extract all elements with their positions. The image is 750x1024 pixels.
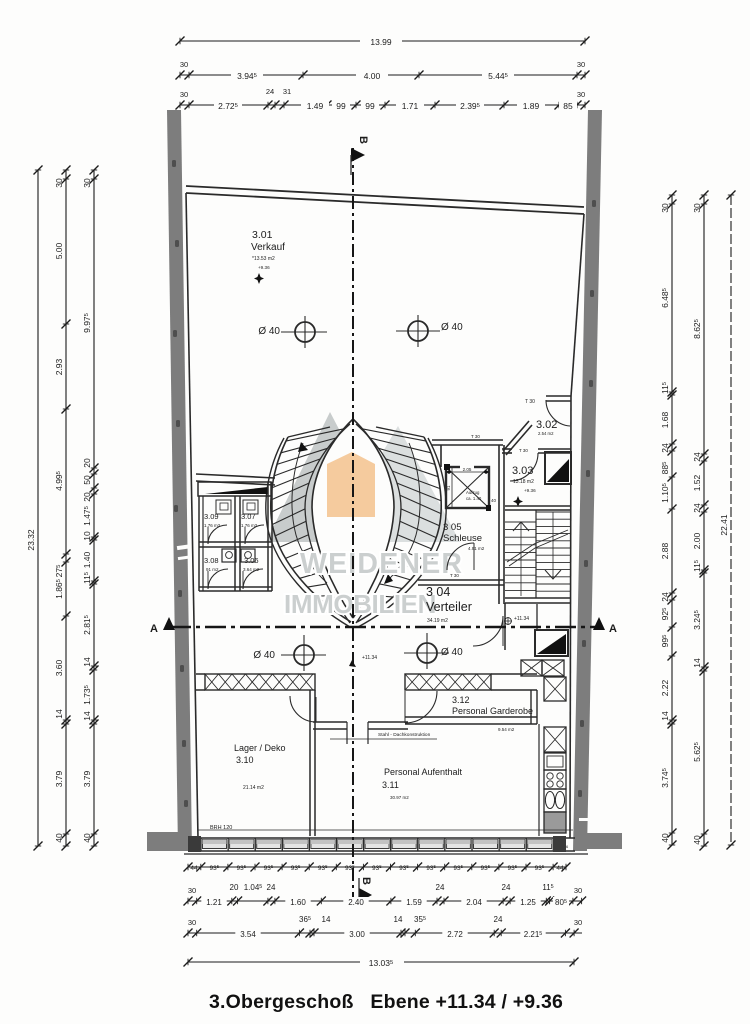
svg-text:1.49: 1.49 <box>307 101 324 111</box>
svg-text:24: 24 <box>436 883 445 892</box>
svg-text:2.05: 2.05 <box>463 467 472 472</box>
svg-text:20: 20 <box>82 492 92 502</box>
svg-text:Ø 40: Ø 40 <box>441 647 463 658</box>
svg-text:ca. 1.40: ca. 1.40 <box>466 496 482 501</box>
svg-text:+11.34: +11.34 <box>362 655 377 661</box>
svg-text:85: 85 <box>563 101 573 111</box>
svg-text:3.54: 3.54 <box>240 930 256 939</box>
svg-text:Personal Aufenthalt: Personal Aufenthalt <box>384 767 463 777</box>
svg-text:14: 14 <box>54 709 64 719</box>
svg-text:Schleuse: Schleuse <box>443 533 482 544</box>
svg-text:3.12: 3.12 <box>452 695 470 705</box>
svg-text:23.32: 23.32 <box>26 529 36 551</box>
svg-text:T 30: T 30 <box>519 448 528 453</box>
svg-text:1.59: 1.59 <box>406 898 422 907</box>
svg-text:3 05: 3 05 <box>443 522 462 533</box>
svg-text:1.60: 1.60 <box>290 898 306 907</box>
svg-text:1.25: 1.25 <box>520 898 536 907</box>
svg-text:9.54 m2: 9.54 m2 <box>498 727 515 732</box>
svg-text:+9.36: +9.36 <box>258 265 270 270</box>
svg-text:T 30: T 30 <box>450 573 459 578</box>
svg-text:2.93: 2.93 <box>54 358 64 375</box>
svg-text:*13.53 m2: *13.53 m2 <box>252 256 275 262</box>
svg-text:30.97 m2: 30.97 m2 <box>390 795 409 800</box>
svg-text:44: 44 <box>190 865 198 872</box>
svg-text:1.71: 1.71 <box>402 101 419 111</box>
svg-text:30: 30 <box>180 60 188 69</box>
svg-text:13.18 m2: 13.18 m2 <box>513 479 534 485</box>
svg-text:14: 14 <box>322 915 331 924</box>
svg-text:3.02: 3.02 <box>536 419 557 431</box>
svg-text:Lager / Deko: Lager / Deko <box>234 743 286 753</box>
svg-text:WEIDENER: WEIDENER <box>300 548 463 580</box>
svg-text:50: 50 <box>82 475 92 485</box>
svg-text:4.00: 4.00 <box>364 71 381 81</box>
svg-text:3.79: 3.79 <box>54 770 64 787</box>
svg-text:3.03: 3.03 <box>512 465 533 477</box>
svg-text:14: 14 <box>394 915 403 924</box>
svg-text:10: 10 <box>82 531 92 541</box>
svg-text:Ø 40: Ø 40 <box>253 650 275 661</box>
svg-text:A: A <box>150 623 158 635</box>
svg-text:Verteiler: Verteiler <box>426 600 472 614</box>
svg-text:99: 99 <box>336 101 346 111</box>
svg-text:3.10: 3.10 <box>236 755 254 765</box>
svg-text:2.72: 2.72 <box>447 930 463 939</box>
svg-text:30: 30 <box>692 203 702 213</box>
svg-text:3.60: 3.60 <box>54 659 64 676</box>
svg-text:13.035: 13.035 <box>369 958 394 968</box>
svg-text:24: 24 <box>660 592 670 602</box>
svg-text:1.89: 1.89 <box>523 101 540 111</box>
svg-text:4.91 m2: 4.91 m2 <box>468 546 485 551</box>
svg-text:3.08: 3.08 <box>204 556 219 565</box>
svg-text:Aufzug: Aufzug <box>466 490 480 495</box>
svg-text:40: 40 <box>491 498 497 503</box>
svg-text:IMMOBILIEN: IMMOBILIEN <box>284 589 436 619</box>
svg-text:30: 30 <box>574 886 582 895</box>
svg-text:14: 14 <box>82 711 92 721</box>
svg-text:30: 30 <box>82 178 92 188</box>
svg-text:20: 20 <box>82 458 92 468</box>
svg-text:24: 24 <box>660 443 670 453</box>
svg-text:Personal Garderobe: Personal Garderobe <box>452 706 533 716</box>
svg-text:30: 30 <box>660 203 670 213</box>
svg-text:2.88: 2.88 <box>660 542 670 559</box>
svg-text:14: 14 <box>692 658 702 668</box>
svg-text:2.00: 2.00 <box>692 532 702 549</box>
svg-text:5.00: 5.00 <box>54 242 64 259</box>
svg-text:24: 24 <box>266 87 274 96</box>
svg-text:30: 30 <box>180 90 188 99</box>
svg-text:40: 40 <box>82 833 92 843</box>
svg-text:2.22: 2.22 <box>660 679 670 696</box>
svg-text:1.21: 1.21 <box>206 898 222 907</box>
svg-text:3.01: 3.01 <box>252 229 273 241</box>
svg-text:T 30: T 30 <box>525 399 535 405</box>
svg-text:+11.34: +11.34 <box>514 616 529 622</box>
svg-text:Ø 40: Ø 40 <box>441 322 463 333</box>
svg-text:2.54 m2: 2.54 m2 <box>538 431 554 436</box>
svg-text:24: 24 <box>692 503 702 513</box>
svg-text:1.40: 1.40 <box>82 551 92 568</box>
svg-text:30: 30 <box>188 918 196 927</box>
svg-text:30: 30 <box>574 918 582 927</box>
svg-text:31: 31 <box>283 87 291 96</box>
svg-text:30: 30 <box>54 178 64 188</box>
svg-text:24: 24 <box>494 915 503 924</box>
svg-text:3 04: 3 04 <box>426 585 450 599</box>
svg-text:3.00: 3.00 <box>349 930 365 939</box>
svg-text:24: 24 <box>692 452 702 462</box>
svg-text:40: 40 <box>692 835 702 845</box>
svg-text:20: 20 <box>230 883 239 892</box>
svg-text:21.14 m2: 21.14 m2 <box>243 785 264 791</box>
svg-text:T 30: T 30 <box>471 434 480 439</box>
svg-text:Ø 40: Ø 40 <box>258 326 280 337</box>
svg-text:22.41: 22.41 <box>719 514 729 536</box>
svg-text:40: 40 <box>660 833 670 843</box>
svg-text:44: 44 <box>556 865 564 872</box>
svg-text:B: B <box>357 136 369 144</box>
svg-text:24: 24 <box>502 883 511 892</box>
svg-text:1.52: 1.52 <box>692 474 702 491</box>
svg-text:30: 30 <box>188 886 196 895</box>
svg-text:99: 99 <box>365 101 375 111</box>
svg-text:34.19 m2: 34.19 m2 <box>427 618 448 624</box>
svg-text:1.68: 1.68 <box>660 411 670 428</box>
svg-text:Stahl - Dachkonstruktion: Stahl - Dachkonstruktion <box>378 732 431 738</box>
svg-text:14: 14 <box>82 657 92 667</box>
svg-text:3.79: 3.79 <box>82 770 92 787</box>
svg-text:30: 30 <box>577 90 585 99</box>
svg-text:2.04: 2.04 <box>466 898 482 907</box>
svg-text:14: 14 <box>660 711 670 721</box>
svg-text:A: A <box>609 623 617 635</box>
svg-text:24: 24 <box>267 883 276 892</box>
svg-text:91: 91 <box>446 485 451 491</box>
svg-text:+9.36: +9.36 <box>524 488 536 493</box>
svg-text:2.40: 2.40 <box>348 898 364 907</box>
svg-text:BRH 120: BRH 120 <box>210 825 232 831</box>
svg-text:40: 40 <box>54 833 64 843</box>
svg-text:30: 30 <box>577 60 585 69</box>
svg-text:13.99: 13.99 <box>370 37 392 47</box>
svg-text:B: B <box>360 877 372 885</box>
svg-text:3.Obergeschoß Ebene +11.34 /: 3.Obergeschoß Ebene +11.34 / +9.36 <box>209 991 563 1013</box>
svg-text:Verkauf: Verkauf <box>251 242 285 253</box>
svg-text:3.11: 3.11 <box>382 780 399 790</box>
